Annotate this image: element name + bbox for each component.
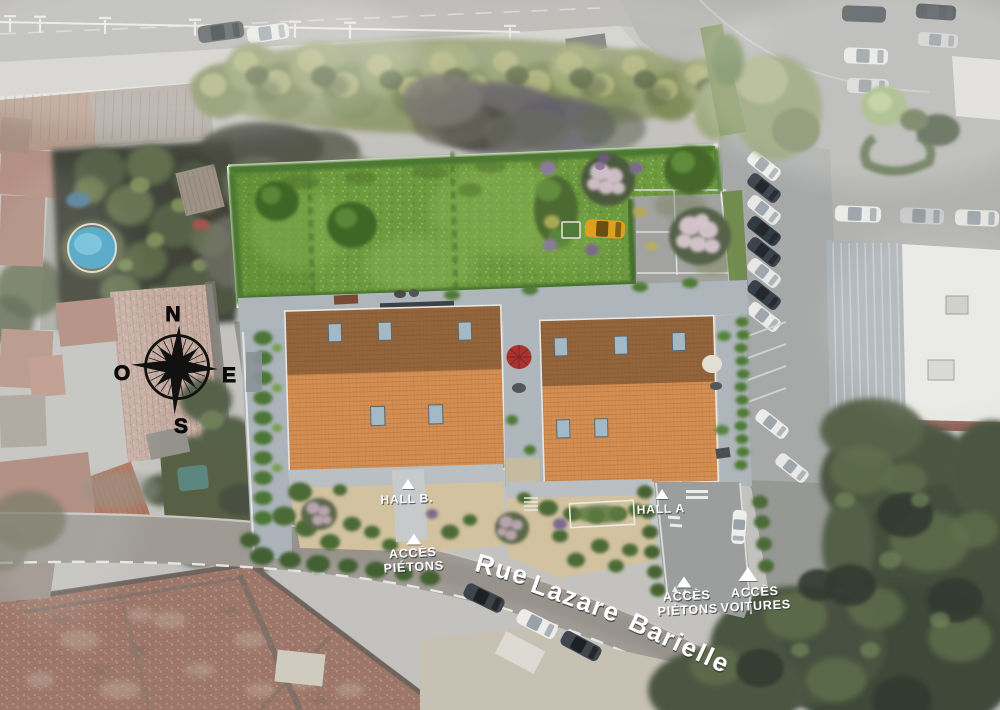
svg-text:PIÉTONS: PIÉTONS — [657, 600, 718, 618]
svg-text:E: E — [222, 364, 236, 387]
svg-text:HALL B.: HALL B. — [380, 491, 433, 507]
svg-text:HALL A: HALL A — [637, 501, 686, 517]
svg-text:PIÉTONS: PIÉTONS — [383, 557, 444, 575]
svg-text:N: N — [165, 303, 180, 326]
svg-text:S: S — [174, 415, 188, 438]
svg-text:O: O — [114, 362, 130, 385]
